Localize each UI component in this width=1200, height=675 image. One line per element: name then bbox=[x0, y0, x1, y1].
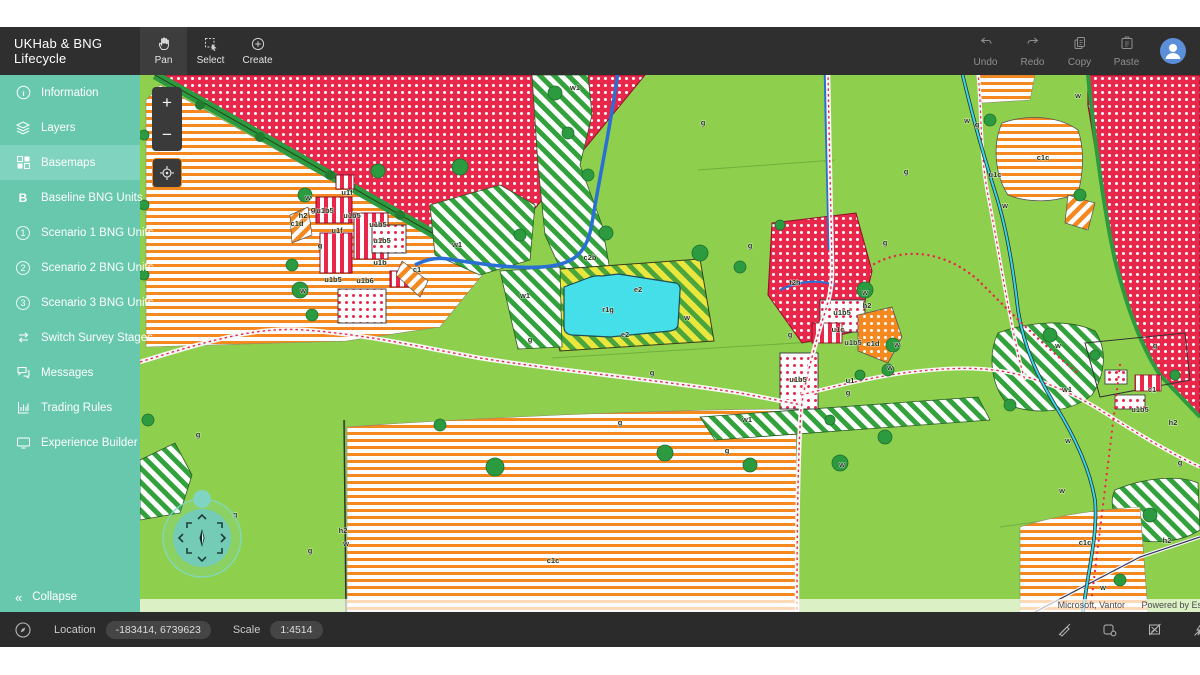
habitat-code-label: w bbox=[963, 116, 970, 125]
sidebar-item-experience-builder[interactable]: Experience Builder bbox=[0, 425, 140, 460]
zoom-control: + − bbox=[152, 87, 182, 188]
sidebar-item-baseline-bng-units[interactable]: B Baseline BNG Units bbox=[0, 180, 140, 215]
habitat-code-label: w bbox=[893, 340, 900, 349]
pan-tool-button[interactable]: Pan bbox=[140, 27, 187, 75]
trading-rules-icon bbox=[15, 400, 31, 416]
habitat-code-label: u1b5 bbox=[343, 211, 361, 220]
compass-rotate-handle[interactable] bbox=[193, 490, 211, 508]
scale-value: 1:4514 bbox=[270, 621, 322, 639]
sidebar-item-trading-rules[interactable]: Trading Rules bbox=[0, 390, 140, 425]
zoom-in-button[interactable]: + bbox=[152, 87, 182, 119]
collapse-label: Collapse bbox=[32, 591, 77, 603]
user-avatar-button[interactable] bbox=[1160, 38, 1186, 64]
scenario-3-icon: 3 bbox=[15, 295, 31, 311]
copy-icon bbox=[1072, 35, 1088, 54]
info-icon bbox=[15, 85, 31, 101]
habitat-code-label: g bbox=[650, 368, 655, 377]
sidebar-item-label: Scenario 2 BNG Units bbox=[41, 262, 154, 274]
main-area: Information Layers Basemaps B Baseline B… bbox=[0, 75, 1200, 612]
location-value: -183414, 6739623 bbox=[106, 621, 211, 639]
habitat-code-label: c1c bbox=[547, 556, 560, 565]
habitat-code-label: g bbox=[788, 330, 793, 339]
sidebar-collapse-button[interactable]: « Collapse bbox=[0, 582, 140, 612]
habitat-code-label: u1b bbox=[373, 258, 387, 267]
compass-status-icon[interactable] bbox=[14, 621, 32, 639]
switch-icon bbox=[15, 330, 31, 346]
habitat-code-label: c1c bbox=[1037, 153, 1050, 162]
zoom-out-button[interactable]: − bbox=[152, 119, 182, 151]
habitat-code-label: u1b5 bbox=[844, 338, 862, 347]
sidebar-item-label: Switch Survey Stages bbox=[41, 332, 153, 344]
redo-label: Redo bbox=[1021, 57, 1045, 68]
habitat-code-label: g bbox=[618, 418, 623, 427]
copy-label: Copy bbox=[1068, 57, 1091, 68]
habitat-code-label: e2 bbox=[621, 330, 629, 339]
habitat-code-label: w bbox=[299, 286, 306, 295]
sidebar-item-label: Trading Rules bbox=[41, 402, 112, 414]
habitat-code-label: w bbox=[861, 288, 868, 297]
layers-icon bbox=[15, 120, 31, 136]
habitat-code-label: w1 bbox=[741, 415, 752, 424]
select-tool-button[interactable]: Select bbox=[187, 27, 234, 75]
edit-actions-group: Undo Redo Copy Paste bbox=[962, 27, 1200, 75]
habitat-code-label: u1b5 bbox=[1131, 405, 1149, 414]
sidebar-item-scenario-1[interactable]: 1 Scenario 1 BNG Units bbox=[0, 215, 140, 250]
habitat-code-label: w1 bbox=[451, 240, 462, 249]
locate-crosshair-icon bbox=[159, 165, 175, 181]
habitat-code-label: w bbox=[683, 313, 690, 322]
location-label: Location bbox=[54, 624, 96, 636]
sidebar-item-switch-survey-stages[interactable]: Switch Survey Stages bbox=[0, 320, 140, 355]
map-canvas[interactable]: ggggggggggggggggggwwwwwwwwwwwwwwww1w1w1w… bbox=[140, 75, 1200, 612]
top-toolbar: UKHab & BNG Lifecycle Pan Select Create bbox=[0, 27, 1200, 75]
locate-button[interactable] bbox=[152, 158, 182, 188]
redo-icon bbox=[1025, 35, 1041, 54]
habitat-code-label: w bbox=[1058, 486, 1065, 495]
habitat-code-label: g bbox=[308, 546, 313, 555]
messages-icon bbox=[15, 365, 31, 381]
sidebar-item-basemaps[interactable]: Basemaps bbox=[0, 145, 140, 180]
status-bar: Location -183414, 6739623 Scale 1:4514 bbox=[0, 612, 1200, 647]
user-icon bbox=[1160, 38, 1186, 64]
sidebar-item-label: Scenario 1 BNG Units bbox=[41, 227, 154, 239]
habitat-code-label: u1b5 bbox=[316, 206, 334, 215]
habitat-code-label: u1 bbox=[846, 376, 855, 385]
habitat-code-label: u1b6 bbox=[356, 276, 374, 285]
habitat-code-label: w1 bbox=[519, 291, 530, 300]
map-attribution: Microsoft, Vantor Powered by Esri bbox=[140, 599, 1200, 612]
habitat-code-label: c1d bbox=[291, 219, 304, 228]
snapping-disabled-icon[interactable] bbox=[1192, 622, 1200, 637]
habitat-code-label: h2 bbox=[863, 301, 872, 310]
habitat-code-label: g bbox=[748, 241, 753, 250]
collapse-chevrons-icon: « bbox=[15, 590, 22, 605]
habitat-code-label: u1b5 bbox=[789, 375, 807, 384]
habitat-code-label: w bbox=[1064, 436, 1071, 445]
redo-button[interactable]: Redo bbox=[1009, 35, 1056, 68]
habitat-code-label: g bbox=[318, 241, 323, 250]
habitat-code-label: w bbox=[1054, 341, 1061, 350]
sidebar-item-label: Baseline BNG Units bbox=[41, 192, 143, 204]
habitat-code-label: w bbox=[1074, 91, 1081, 100]
habitat-code-label: w bbox=[1001, 201, 1008, 210]
habitat-code-label: w bbox=[1099, 583, 1106, 592]
habitat-code-label: h2 bbox=[299, 211, 308, 220]
habitat-code-label: c2b bbox=[584, 253, 597, 262]
sidebar: Information Layers Basemaps B Baseline B… bbox=[0, 75, 140, 612]
undo-label: Undo bbox=[974, 57, 998, 68]
habitat-code-label: h2 bbox=[1163, 536, 1172, 545]
habitat-code-label: w bbox=[304, 193, 311, 202]
habitat-code-label: g bbox=[975, 120, 980, 129]
create-tool-button[interactable]: Create bbox=[234, 27, 281, 75]
habitat-code-label: h2 bbox=[1169, 418, 1178, 427]
create-tool-label: Create bbox=[242, 55, 272, 66]
sidebar-item-scenario-3[interactable]: 3 Scenario 3 BNG Units bbox=[0, 285, 140, 320]
app-title: UKHab & BNG Lifecycle bbox=[0, 27, 140, 75]
sidebar-item-label: Scenario 3 BNG Units bbox=[41, 297, 154, 309]
sidebar-item-label: Basemaps bbox=[41, 157, 95, 169]
select-tool-label: Select bbox=[197, 55, 225, 66]
grid-disabled-icon[interactable] bbox=[1147, 622, 1162, 637]
paste-clipboard-icon bbox=[1119, 35, 1135, 54]
habitat-code-label: g bbox=[1153, 341, 1158, 350]
scenario-2-icon: 2 bbox=[15, 260, 31, 276]
sidebar-item-label: Information bbox=[41, 87, 99, 99]
sidebar-item-scenario-2[interactable]: 2 Scenario 2 BNG Units bbox=[0, 250, 140, 285]
habitat-code-label: w1 bbox=[569, 83, 580, 92]
sidebar-item-messages[interactable]: Messages bbox=[0, 355, 140, 390]
undo-icon bbox=[978, 35, 994, 54]
habitat-code-label: e2 bbox=[634, 285, 642, 294]
habitat-code-label: u1b5 bbox=[833, 308, 851, 317]
habitat-code-label: c1d bbox=[867, 339, 880, 348]
powered-by-esri[interactable]: Powered by Esri bbox=[1141, 600, 1200, 610]
habitat-code-label: g bbox=[1178, 458, 1183, 467]
basemaps-icon bbox=[15, 155, 31, 171]
habitat-code-label: w1 bbox=[1061, 385, 1072, 394]
sidebar-item-label: Experience Builder bbox=[41, 437, 138, 449]
scenario-1-icon: 1 bbox=[15, 225, 31, 241]
app-window: UKHab & BNG Lifecycle Pan Select Create bbox=[0, 27, 1200, 647]
habitat-code-label: u1c bbox=[832, 325, 845, 334]
pan-hand-icon bbox=[156, 36, 172, 52]
ground-settings-icon[interactable] bbox=[1102, 622, 1117, 637]
habitat-code-label: w bbox=[838, 460, 845, 469]
habitat-code-label: t2h bbox=[789, 278, 801, 287]
habitat-code-label: w bbox=[886, 363, 893, 372]
habitat-code-label: c1 bbox=[413, 265, 421, 274]
habitat-code-label: g bbox=[883, 238, 888, 247]
select-marquee-icon bbox=[203, 36, 219, 52]
habitat-code-label: g bbox=[528, 335, 533, 344]
habitat-code-label: g bbox=[701, 118, 706, 127]
experience-builder-icon bbox=[15, 435, 31, 451]
habitat-code-label: g bbox=[846, 388, 851, 397]
habitat-code-label: u1b5 bbox=[373, 236, 391, 245]
sidebar-item-layers[interactable]: Layers bbox=[0, 110, 140, 145]
pan-tool-label: Pan bbox=[155, 55, 173, 66]
habitat-code-label: h2 bbox=[339, 526, 348, 535]
habitat-code-label: u1f bbox=[341, 188, 353, 197]
habitat-basemap: ggggggggggggggggggwwwwwwwwwwwwwwww1w1w1w… bbox=[140, 75, 1200, 612]
compass-pan-widget[interactable] bbox=[154, 478, 250, 589]
sidebar-item-label: Messages bbox=[41, 367, 93, 379]
undo-button[interactable]: Undo bbox=[962, 35, 1009, 68]
paste-label: Paste bbox=[1114, 57, 1140, 68]
habitat-code-label: u1b5 bbox=[324, 275, 342, 284]
habitat-code-label: g bbox=[196, 430, 201, 439]
sidebar-item-information[interactable]: Information bbox=[0, 75, 140, 110]
habitat-code-label: g bbox=[904, 167, 909, 176]
copy-button[interactable]: Copy bbox=[1056, 35, 1103, 68]
attribution-sources: Microsoft, Vantor bbox=[1058, 600, 1125, 610]
sketch-disabled-icon[interactable] bbox=[1057, 622, 1072, 637]
baseline-bng-icon: B bbox=[15, 190, 31, 206]
habitat-code-label: u1f bbox=[331, 226, 343, 235]
habitat-code-label: g bbox=[725, 446, 730, 455]
habitat-code-label: c1 bbox=[1148, 385, 1156, 394]
create-plus-icon bbox=[250, 36, 266, 52]
habitat-code-label: u1c bbox=[989, 170, 1002, 179]
habitat-code-label: u1b5 bbox=[369, 220, 387, 229]
habitat-code-label: c1c bbox=[1079, 538, 1092, 547]
sidebar-item-label: Layers bbox=[41, 122, 76, 134]
habitat-code-label: w bbox=[342, 539, 349, 548]
statusbar-icons-group bbox=[1057, 622, 1200, 637]
scale-label: Scale bbox=[233, 624, 261, 636]
paste-button[interactable]: Paste bbox=[1103, 35, 1150, 68]
habitat-code-label: r1g bbox=[602, 305, 614, 314]
habitat-code-label: g bbox=[311, 205, 316, 214]
